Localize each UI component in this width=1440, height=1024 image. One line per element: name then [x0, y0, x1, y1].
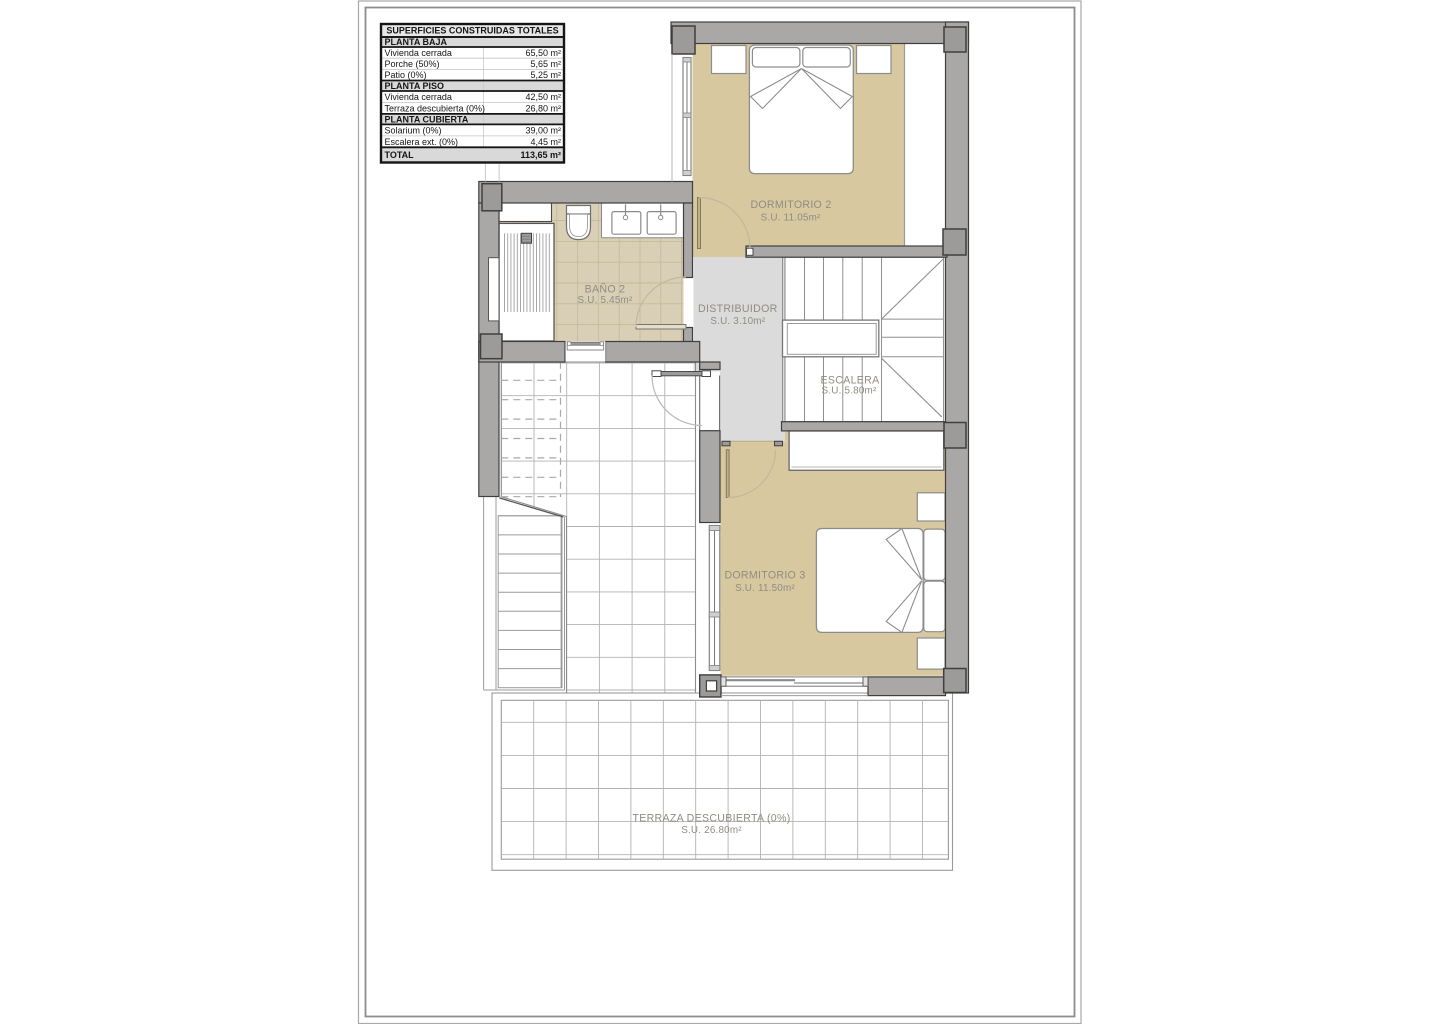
svg-text:DORMITORIO 2: DORMITORIO 2: [750, 199, 831, 211]
svg-text:PLANTA BAJA: PLANTA BAJA: [385, 37, 448, 47]
svg-text:DISTRIBUIDOR: DISTRIBUIDOR: [698, 303, 778, 315]
svg-text:4,45 m²: 4,45 m²: [530, 137, 561, 147]
svg-text:Vivienda cerrada: Vivienda cerrada: [385, 48, 452, 58]
svg-text:PLANTA PISO: PLANTA PISO: [385, 81, 445, 91]
svg-text:TOTAL: TOTAL: [385, 150, 415, 160]
svg-text:S.U. 11.05m²: S.U. 11.05m²: [761, 213, 821, 224]
svg-text:Solarium (0%): Solarium (0%): [385, 125, 442, 135]
svg-text:Terraza descubierta (0%): Terraza descubierta (0%): [385, 103, 486, 113]
svg-text:S.U. 5.80m²: S.U. 5.80m²: [822, 386, 877, 397]
svg-text:5,25 m²: 5,25 m²: [530, 70, 561, 80]
svg-text:39,00 m²: 39,00 m²: [525, 125, 561, 135]
svg-text:DORMITORIO 3: DORMITORIO 3: [724, 570, 805, 582]
svg-text:SUPERFICIES CONSTRUIDAS TOTALE: SUPERFICIES CONSTRUIDAS TOTALES: [386, 26, 558, 36]
svg-text:42,50 m²: 42,50 m²: [525, 92, 561, 102]
svg-text:Porche (50%): Porche (50%): [385, 59, 440, 69]
svg-text:Escalera ext. (0%): Escalera ext. (0%): [385, 137, 459, 147]
svg-text:S.U. 5.45m²: S.U. 5.45m²: [578, 295, 633, 306]
svg-text:S.U. 3.10m²: S.U. 3.10m²: [710, 316, 765, 327]
svg-text:S.U. 11.50m²: S.U. 11.50m²: [735, 583, 795, 594]
svg-text:113,65 m²: 113,65 m²: [520, 150, 561, 160]
svg-text:S.U. 26.80m²: S.U. 26.80m²: [681, 825, 742, 836]
svg-text:Vivienda cerrada: Vivienda cerrada: [385, 92, 452, 102]
svg-text:BAÑO 2: BAÑO 2: [585, 283, 626, 296]
svg-text:PLANTA CUBIERTA: PLANTA CUBIERTA: [385, 114, 469, 124]
svg-text:Patio (0%): Patio (0%): [385, 70, 427, 80]
svg-text:65,50 m²: 65,50 m²: [525, 48, 561, 58]
svg-text:TERRAZA DESCUBIERTA (0%): TERRAZA DESCUBIERTA (0%): [632, 813, 790, 825]
svg-text:26,80 m²: 26,80 m²: [525, 103, 561, 113]
svg-text:5,65 m²: 5,65 m²: [530, 59, 561, 69]
